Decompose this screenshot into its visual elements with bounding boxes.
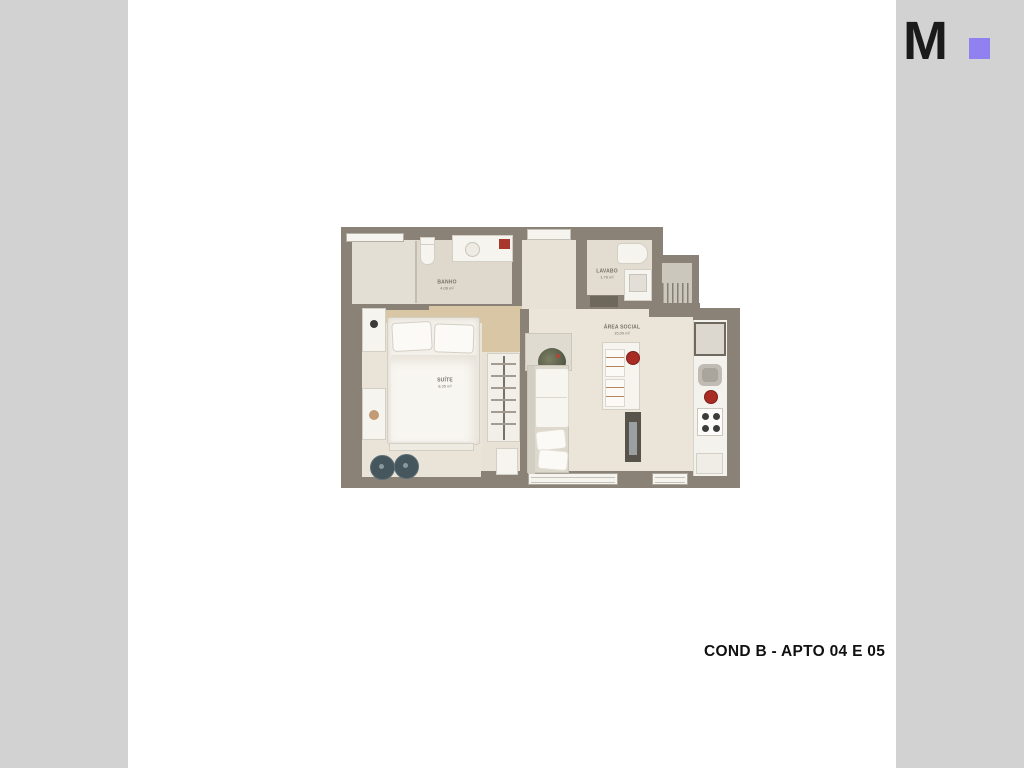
sink-counter-lavabo	[624, 269, 652, 301]
red-decor-social	[626, 351, 640, 365]
logo: M	[903, 16, 999, 72]
hanger-rail	[491, 363, 516, 365]
pouf-left	[370, 455, 395, 480]
shower-glass-partition	[415, 241, 417, 303]
tv-panel	[625, 412, 641, 462]
hanger-rail	[491, 411, 516, 413]
kitchen-cabinet	[696, 453, 723, 474]
room-label-lavabo: LAVABO 1,76 m²	[596, 268, 618, 279]
vase-decor	[370, 320, 378, 328]
kitchen-sink	[698, 364, 722, 386]
toilet-lavabo	[617, 243, 648, 264]
right-panel	[896, 0, 1024, 768]
left-panel	[0, 0, 128, 768]
lavabo-door-opening	[590, 296, 618, 307]
wardrobe	[487, 353, 520, 442]
pillow-left	[391, 321, 432, 352]
page: { "page": { "caption": "COND B - APTO 04…	[0, 0, 1024, 768]
logo-letter: M	[903, 16, 946, 66]
hanger-rail	[491, 375, 516, 377]
window-social	[528, 473, 618, 485]
room-label-banho: BANHO 4,06 m²	[437, 279, 456, 290]
toilet-banho	[420, 244, 435, 265]
floor-closet-wood	[482, 309, 520, 352]
wall-lavabo-left	[576, 227, 587, 307]
hanger-rail	[491, 399, 516, 401]
red-decor-banho	[499, 239, 510, 249]
plant-decor-small	[369, 410, 379, 420]
sofa	[527, 365, 569, 473]
entry-door	[527, 229, 571, 240]
duvet	[391, 355, 477, 441]
pillow-right	[434, 323, 475, 353]
fridge	[694, 322, 726, 356]
nightstand-top	[362, 308, 386, 352]
logo-dot-icon	[969, 38, 990, 59]
pouf-right	[394, 454, 419, 479]
sink-banho	[465, 242, 480, 257]
hanger-rail	[491, 387, 516, 389]
floor-shower	[352, 240, 415, 304]
stove	[697, 408, 723, 436]
hanger-rail	[491, 423, 516, 425]
room-label-area-social: ÁREA SOCIAL 15,00 m²	[604, 324, 640, 335]
red-decor-kitchen	[704, 390, 718, 404]
wall-hall-banho	[512, 227, 522, 306]
door-leaf	[496, 448, 518, 475]
floor-plan: BANHO 4,06 m² LAVABO 1,76 m² ÁREA SOCIAL…	[341, 227, 740, 488]
window-banho	[346, 233, 404, 242]
caption: COND B - APTO 04 E 05	[704, 643, 885, 661]
wall-service-bottom	[649, 303, 700, 317]
window-kitchen	[652, 473, 688, 485]
floor-hall	[522, 240, 576, 312]
bed-bench	[389, 443, 474, 451]
room-label-suite: SUÍTE 8,35 m²	[437, 377, 453, 388]
